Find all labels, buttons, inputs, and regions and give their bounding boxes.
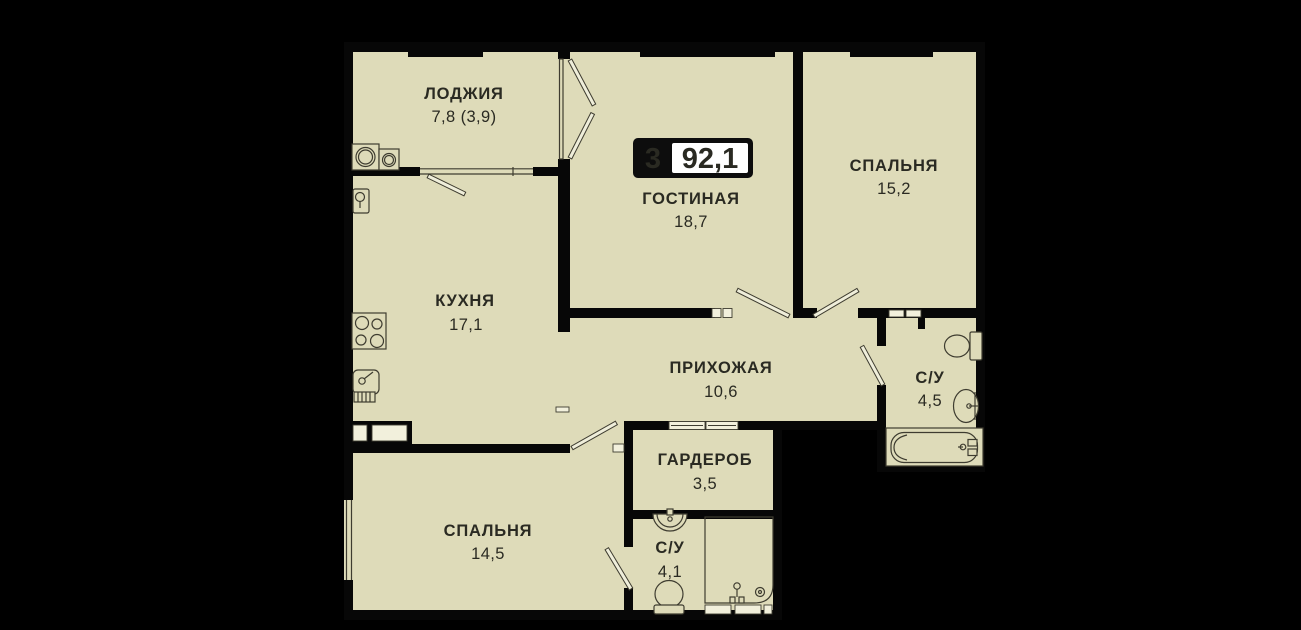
toilet-second-icon <box>654 581 684 615</box>
kitchen-hob-icon <box>352 313 386 349</box>
room-name: С/У <box>655 539 684 557</box>
sink-main-icon <box>954 390 979 423</box>
room-name: СПАЛЬНЯ <box>850 157 939 175</box>
room-area: 4,1 <box>658 563 682 581</box>
badge-room-count: 3 <box>645 143 661 175</box>
room-name: КУХНЯ <box>435 292 495 310</box>
room-name: ПРИХОЖАЯ <box>669 359 772 377</box>
bedroom-bottom-door-frame <box>613 444 624 452</box>
room-area: 4,5 <box>918 392 942 410</box>
room-area: 14,5 <box>471 545 505 563</box>
window-bedroom-bottom-icon <box>344 500 353 580</box>
room-name: С/У <box>915 369 944 387</box>
room-area: 3,5 <box>693 475 717 493</box>
room-area: 10,6 <box>704 383 738 401</box>
floor-plan-page: ЛОДЖИЯ 7,8 (3,9) ГОСТИНАЯ 18,7 СПАЛЬНЯ 1… <box>0 0 1301 630</box>
kitchen-opening-frame <box>556 407 569 412</box>
duct-box <box>353 425 367 441</box>
toilet-main-icon <box>945 332 983 360</box>
room-name: ГАРДЕРОБ <box>658 451 753 469</box>
floor-area <box>344 42 985 620</box>
living-door-frame <box>723 309 732 318</box>
kitchen-boiler-icon <box>353 189 369 213</box>
living-door-frame <box>712 309 721 318</box>
shower-base-box <box>705 605 731 614</box>
window-loggia-kitchen-icon <box>420 167 533 176</box>
room-name: ЛОДЖИЯ <box>424 85 503 103</box>
wardrobe-sliding-door-icon <box>669 422 738 430</box>
vent-box <box>906 310 921 317</box>
shower-base-box <box>764 605 772 614</box>
info-badge: 3 92,1 <box>633 138 753 178</box>
room-area: 15,2 <box>877 180 911 198</box>
vent-box <box>889 310 904 317</box>
kitchen-sink-icon <box>353 370 379 402</box>
bathtub-icon <box>886 428 983 466</box>
duct-box <box>372 425 407 441</box>
badge-total-area: 92,1 <box>682 143 738 175</box>
shower-base-box <box>735 605 761 614</box>
floor-plan: ЛОДЖИЯ 7,8 (3,9) ГОСТИНАЯ 18,7 СПАЛЬНЯ 1… <box>0 0 1301 630</box>
room-name: СПАЛЬНЯ <box>444 522 533 540</box>
room-area: 7,8 (3,9) <box>431 108 496 126</box>
room-area: 18,7 <box>674 213 708 231</box>
room-area: 17,1 <box>449 316 483 334</box>
room-name: ГОСТИНАЯ <box>642 190 740 208</box>
